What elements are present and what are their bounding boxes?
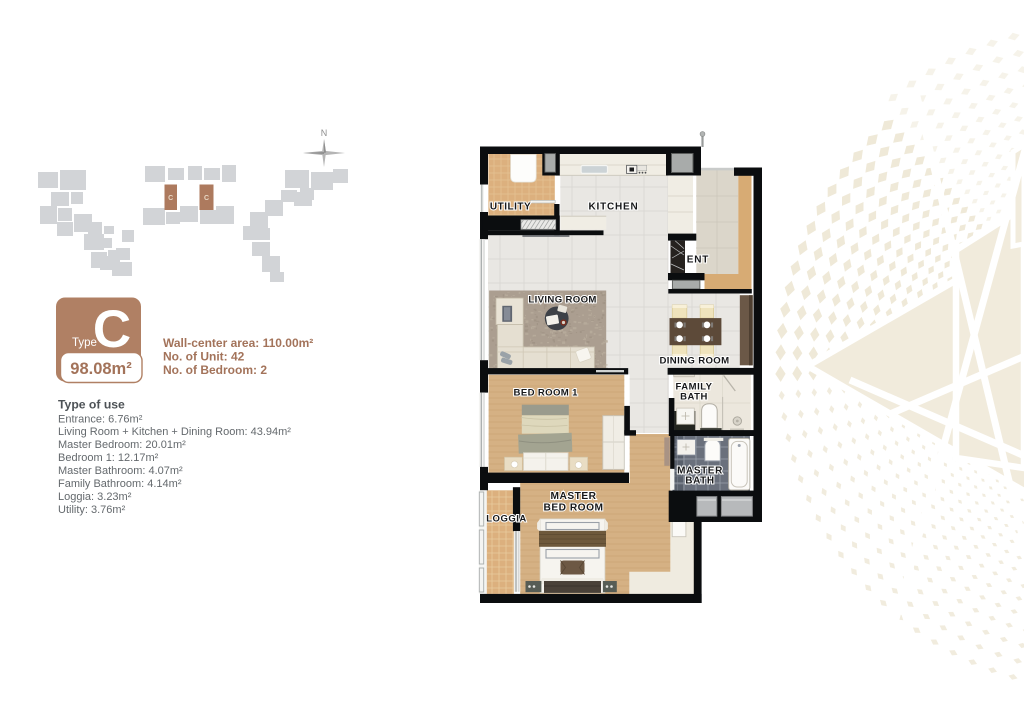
svg-text:C: C — [168, 195, 173, 202]
svg-text:No. of Bedroom: 2: No. of Bedroom: 2 — [163, 363, 267, 377]
svg-text:BATH: BATH — [680, 391, 708, 402]
svg-text:DINING ROOM: DINING ROOM — [660, 356, 730, 367]
svg-text:98.08m²: 98.08m² — [70, 360, 132, 378]
svg-text:Living Room + Kitchen + Dining: Living Room + Kitchen + Dining Room: 43.… — [58, 426, 291, 438]
svg-text:ENT: ENT — [687, 255, 709, 266]
svg-text:KITCHEN: KITCHEN — [588, 202, 638, 213]
svg-text:UTILITY: UTILITY — [490, 202, 531, 213]
svg-text:Family Bathroom: 4.14m²: Family Bathroom: 4.14m² — [58, 478, 182, 490]
svg-text:Master Bedroom: 20.01m²: Master Bedroom: 20.01m² — [58, 439, 186, 451]
svg-text:C: C — [204, 195, 209, 202]
svg-text:Entrance: 6.76m²: Entrance: 6.76m² — [58, 413, 143, 425]
svg-text:Bedroom 1: 12.17m²: Bedroom 1: 12.17m² — [58, 452, 159, 464]
svg-text:Utility: 3.76m²: Utility: 3.76m² — [58, 504, 126, 516]
svg-text:Loggia: 3.23m²: Loggia: 3.23m² — [58, 491, 132, 503]
svg-text:LOGGIA: LOGGIA — [486, 514, 526, 525]
svg-text:BED ROOM: BED ROOM — [543, 503, 603, 514]
svg-text:C: C — [93, 300, 131, 359]
svg-text:LIVING ROOM: LIVING ROOM — [528, 295, 596, 306]
svg-text:BED ROOM 1: BED ROOM 1 — [514, 388, 579, 399]
svg-text:N: N — [321, 128, 328, 138]
svg-text:Wall-center area: 110.00m²: Wall-center area: 110.00m² — [163, 336, 313, 350]
svg-text:BATH: BATH — [685, 476, 714, 487]
svg-text:No. of Unit: 42: No. of Unit: 42 — [163, 350, 245, 364]
svg-text:Master Bathroom: 4.07m²: Master Bathroom: 4.07m² — [58, 465, 183, 477]
svg-text:Type of use: Type of use — [58, 398, 125, 412]
svg-text:MASTER: MASTER — [550, 491, 596, 502]
